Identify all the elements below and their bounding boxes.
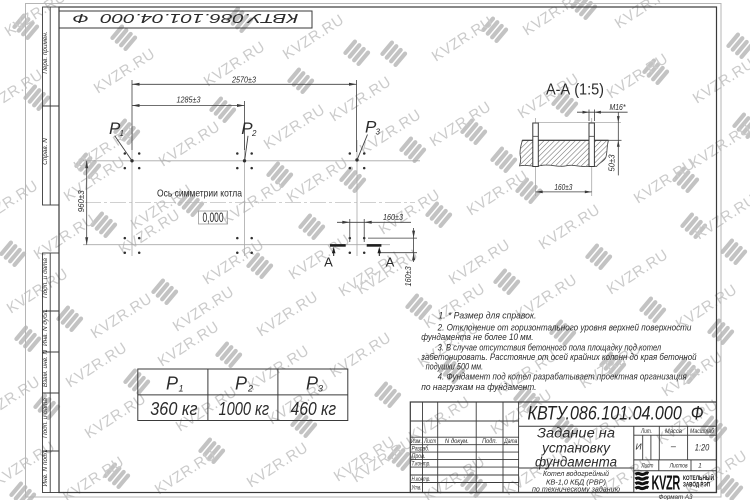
svg-text:Инв. N подл.: Инв. N подл.: [41, 449, 49, 486]
svg-text:KVZR.RU: KVZR.RU: [245, 342, 312, 394]
svg-text:4. Фундамент под котел раз: 4. Фундамент под котел разрабатывает про…: [438, 372, 687, 382]
svg-text:Утв.: Утв.: [411, 485, 422, 492]
svg-text:Формат А3: Формат А3: [659, 494, 693, 500]
svg-text:2: 2: [251, 129, 257, 138]
svg-text:0,000: 0,000: [203, 210, 224, 225]
svg-text:1: 1: [179, 384, 184, 394]
svg-text:160±3: 160±3: [403, 266, 413, 286]
svg-text:КВТУ.086.101.04.000 Ф: КВТУ.086.101.04.000 Ф: [73, 11, 299, 26]
svg-text:Задание на: Задание на: [537, 426, 616, 441]
svg-text:1:20: 1:20: [695, 443, 710, 454]
svg-text:KVZR.RU: KVZR.RU: [82, 390, 149, 442]
svg-text:А-А (1:5): А-А (1:5): [546, 81, 604, 98]
svg-text:1. * Размер для справок.: 1. * Размер для справок.: [438, 311, 536, 321]
svg-text:KVZR.RU: KVZR.RU: [327, 329, 394, 381]
svg-text:2570±3: 2570±3: [231, 74, 256, 84]
svg-text:960±3: 960±3: [76, 190, 86, 212]
svg-text:Дата: Дата: [504, 438, 518, 445]
svg-text:Справ. N: Справ. N: [42, 138, 49, 165]
svg-text:N докум.: N докум.: [445, 438, 469, 445]
svg-text:А: А: [324, 255, 333, 270]
svg-text:Лист: Лист: [423, 438, 436, 445]
svg-text:КВТУ.086.101.04.000 Ф: КВТУ.086.101.04.000 Ф: [528, 404, 704, 425]
svg-text:1285±3: 1285±3: [177, 95, 201, 105]
svg-text:KVZR.RU: KVZR.RU: [687, 120, 750, 172]
svg-text:фундамента не более 10 мм.: фундамента не более 10 мм.: [421, 332, 533, 342]
svg-text:Лист: Лист: [641, 463, 654, 470]
svg-text:KVZR.RU: KVZR.RU: [219, 176, 286, 228]
svg-text:KVZR.RU: KVZR.RU: [261, 101, 328, 153]
svg-text:А: А: [386, 255, 395, 270]
svg-text:KVZR.RU: KVZR.RU: [63, 339, 130, 391]
svg-text:ЗАВОД РЭП: ЗАВОД РЭП: [683, 482, 710, 489]
svg-text:KVZR.RU: KVZR.RU: [156, 118, 223, 170]
svg-text:160±3: 160±3: [554, 182, 572, 192]
svg-text:Разраб.: Разраб.: [412, 445, 430, 453]
svg-text:KVZR.RU: KVZR.RU: [4, 265, 71, 317]
svg-text:KVZR.RU: KVZR.RU: [0, 177, 41, 229]
svg-text:Подп. и дата: Подп. и дата: [41, 258, 49, 298]
svg-text:1: 1: [698, 463, 702, 470]
svg-text:Масса: Масса: [665, 428, 683, 435]
svg-text:KVZR.RU: KVZR.RU: [244, 439, 311, 491]
svg-text:KVZR: KVZR: [652, 473, 681, 495]
svg-text:P: P: [166, 374, 178, 394]
svg-text:160±3: 160±3: [383, 212, 403, 222]
svg-text:–: –: [670, 441, 677, 451]
svg-text:P: P: [306, 374, 318, 394]
svg-text:Подп.: Подп.: [482, 438, 497, 445]
svg-text:50±3: 50±3: [607, 154, 617, 171]
svg-text:KVZR.RU: KVZR.RU: [429, 13, 496, 65]
svg-text:Подп. и дата: Подп. и дата: [41, 398, 49, 438]
svg-text:KVZR.RU: KVZR.RU: [0, 438, 58, 490]
svg-text:1000 кг: 1000 кг: [219, 399, 270, 419]
svg-text:Н.контр.: Н.контр.: [412, 476, 431, 483]
svg-text:Лит.: Лит.: [640, 428, 652, 435]
svg-text:по техническому заданию: по техническому заданию: [532, 485, 620, 494]
svg-text:460 кг: 460 кг: [291, 399, 337, 419]
svg-text:KVZR.RU: KVZR.RU: [286, 231, 353, 283]
svg-text:подушки 500 мм.: подушки 500 мм.: [426, 362, 484, 372]
svg-text:Т.контр.: Т.контр.: [412, 461, 431, 468]
svg-text:по нагрузкам на фундамент.: по нагрузкам на фундамент.: [421, 382, 536, 392]
svg-text:Взам. инв. N: Взам. инв. N: [42, 350, 49, 388]
svg-text:KVZR.RU: KVZR.RU: [604, 246, 671, 298]
svg-text:KVZR.RU: KVZR.RU: [327, 73, 394, 125]
svg-text:Листов: Листов: [669, 463, 688, 470]
svg-text:М16*: М16*: [610, 102, 627, 112]
svg-text:KVZR.RU: KVZR.RU: [91, 45, 158, 97]
svg-text:Пров.: Пров.: [412, 453, 426, 460]
svg-text:P: P: [235, 374, 247, 394]
svg-text:KVZR.RU: KVZR.RU: [254, 288, 321, 340]
svg-text:KVZR.RU: KVZR.RU: [536, 201, 603, 253]
svg-text:КОТЕЛЬНЫЙ: КОТЕЛЬНЫЙ: [683, 473, 714, 482]
svg-text:KVZR.RU: KVZR.RU: [0, 373, 43, 425]
svg-text:2: 2: [247, 384, 253, 394]
svg-text:KVZR.RU: KVZR.RU: [520, 0, 587, 39]
svg-text:3: 3: [376, 128, 381, 137]
svg-text:KVZR.RU: KVZR.RU: [88, 290, 155, 342]
svg-text:Ось симметрии котла: Ось симметрии котла: [157, 187, 242, 199]
svg-text:И: И: [635, 442, 642, 452]
svg-text:Инв. N дубл.: Инв. N дубл.: [41, 309, 49, 346]
svg-text:KVZR.RU: KVZR.RU: [427, 98, 494, 150]
svg-text:360 кг: 360 кг: [150, 399, 197, 419]
svg-text:KVZR.RU: KVZR.RU: [690, 55, 750, 107]
svg-text:KVZR.RU: KVZR.RU: [612, 0, 679, 32]
svg-text:1: 1: [120, 129, 124, 138]
svg-text:Изм.: Изм.: [411, 438, 422, 445]
svg-text:фундамента: фундамента: [535, 455, 617, 470]
svg-text:KVZR.RU: KVZR.RU: [152, 446, 219, 498]
svg-text:установку: установку: [541, 441, 611, 456]
svg-text:Перв. примен.: Перв. примен.: [42, 31, 49, 73]
svg-text:забетонировать. Расстояние о: забетонировать. Расстояние от осей крайн…: [420, 352, 696, 362]
svg-text:Масштаб: Масштаб: [690, 428, 714, 435]
svg-text:3: 3: [318, 384, 323, 394]
